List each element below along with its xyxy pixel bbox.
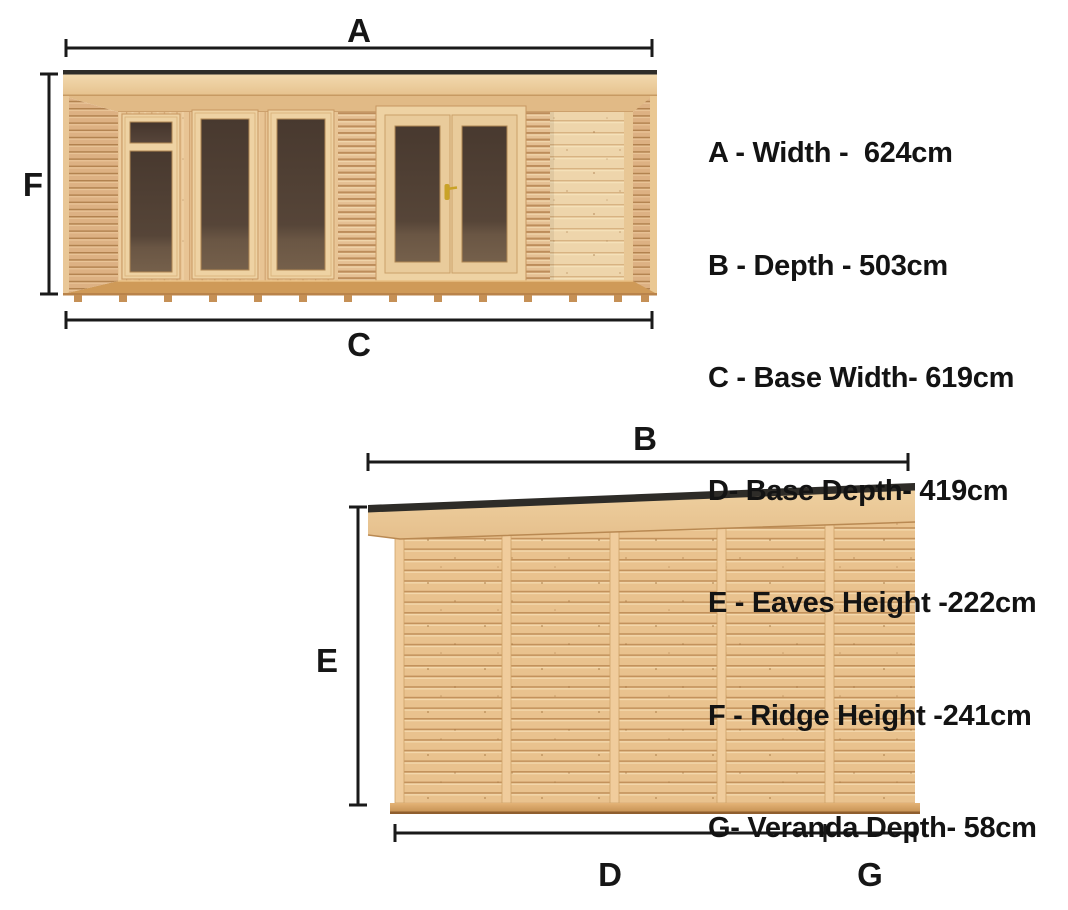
legend-item-base-depth: D- Base Depth- 419cm [708,473,1064,511]
slatted-panel-left-of-door [338,112,376,281]
dimension-e-label: E [316,642,338,679]
veranda-corner-post [624,112,633,281]
legend-item-veranda-depth: G- Veranda Depth- 58cm [708,810,1064,848]
dimension-b-label: B [633,420,657,457]
window-2 [192,110,258,279]
window-transom [122,114,180,279]
dimension-a-label: A [347,12,371,49]
transom-glass [130,122,172,143]
dimension-f-label: F [23,166,43,203]
dimension-line-a: A [66,12,652,57]
deck-front-edge [63,293,657,296]
window-3-glass [277,119,325,270]
slatted-panel-right-of-door [524,112,550,281]
floor-bearers [74,295,649,302]
dimension-c-label: C [347,326,371,363]
door-left-glass [395,126,440,262]
left-side-wall [63,96,118,294]
fascia-shadow-line [63,95,657,97]
window-1-glass [130,151,172,272]
legend-item-ridge-height: F - Ridge Height -241cm [708,698,1064,736]
front-building [63,70,657,302]
legend-item-depth: B - Depth - 503cm [708,248,1064,286]
double-doors [376,106,526,281]
dimension-d-label: D [598,856,622,893]
window-2-glass [201,119,249,270]
dimension-legend: A - Width - 624cm B - Depth - 503cm C - … [708,60,1064,910]
legend-item-base-width: C - Base Width- 619cm [708,360,1064,398]
dimension-line-c: C [66,311,652,363]
left-corner-post [63,96,69,294]
legend-item-eaves-height: E - Eaves Height -222cm [708,585,1064,623]
door-right-glass [462,126,507,262]
floor-deck [63,281,657,294]
front-elevation-view: A [0,0,680,368]
dimension-line-e: E [316,507,367,805]
door-handle-icon [445,184,450,200]
veranda-wall-grain [550,112,633,281]
right-corner-post [650,96,657,294]
veranda-bay [550,112,633,281]
veranda-ceiling [63,96,657,112]
front-roof-fascia [63,75,657,96]
window-3 [268,110,334,279]
legend-item-width: A - Width - 624cm [708,135,1064,173]
right-side-wall [633,98,650,293]
veranda-shadow [550,112,554,281]
front-roof-felt-edge [63,70,657,75]
door-handle-lever [447,188,457,190]
dimension-line-f: F [23,74,58,294]
dimension-diagram-page: A [0,0,1068,910]
